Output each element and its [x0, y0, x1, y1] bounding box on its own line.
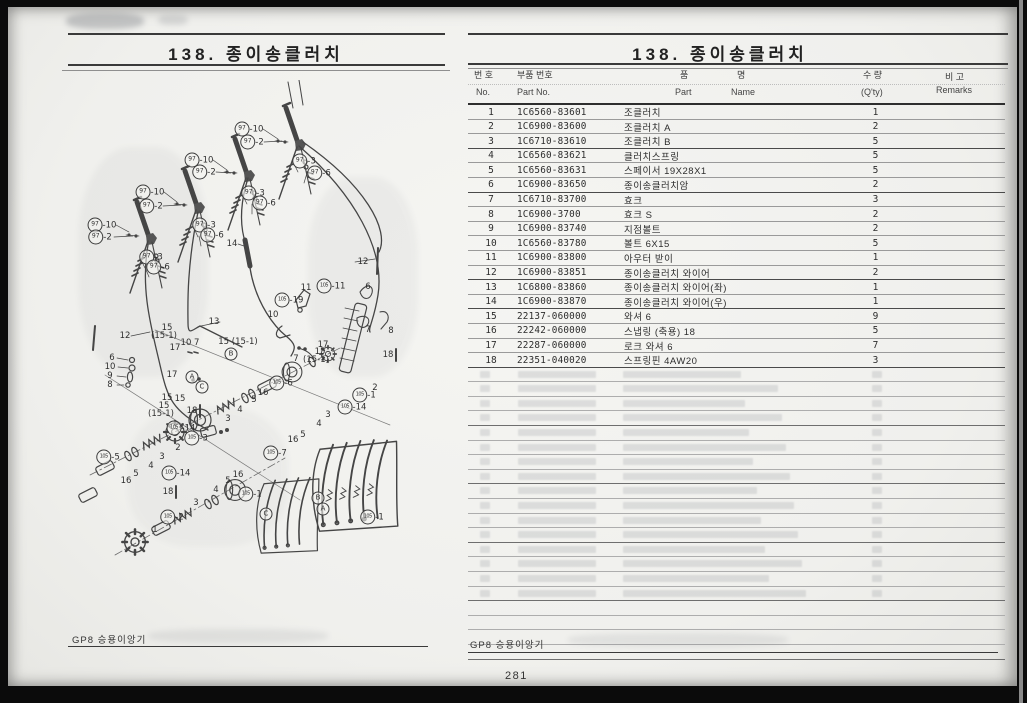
cell-no: 8: [468, 209, 514, 220]
scanned-page-spread: 138. 종이송클러치: [8, 7, 1017, 686]
bleedthrough-footer: [568, 633, 788, 647]
empty-table-row: [468, 616, 1005, 631]
diagram-callout: 3: [193, 498, 198, 508]
left-page-footer: GP8 승용이앙기: [72, 632, 146, 646]
col-header-part-ko: 부품 번호: [517, 68, 553, 81]
diagram-callout: 7: [293, 354, 298, 364]
cell-qty: 5: [847, 238, 904, 249]
empty-table-row: [468, 514, 1005, 529]
cell-part-name: 로크 와셔 6: [617, 339, 847, 353]
cell-qty: 2: [847, 121, 904, 132]
cell-qty: 9: [847, 311, 904, 322]
diagram-figure-ref: 97-6: [200, 228, 223, 243]
cell-part-name: 조클러치 B: [617, 134, 847, 148]
table-row: 11C6560-83601조클러치1: [468, 105, 1005, 120]
diagram-callout: 4: [237, 405, 242, 415]
cell-part-number: 1C6560-83780: [514, 238, 617, 249]
diagram-figure-ref: 97-6: [146, 260, 169, 275]
table-row: 91C6900-83740지점볼트2: [468, 222, 1005, 237]
diagram-callout: (15-1): [151, 331, 177, 341]
diagram-figure-ref: 97-2: [240, 135, 263, 150]
diagram-callout: 8: [107, 380, 112, 390]
table-row: 121C6900-83851종이송클러치 와이어2: [468, 266, 1005, 281]
empty-table-row: [468, 368, 1005, 383]
diagram-callout: 16: [233, 470, 244, 480]
cell-no: 17: [468, 340, 514, 351]
cell-qty: 2: [847, 223, 904, 234]
col-header-no-en: No.: [476, 87, 490, 97]
diagram-group-letter: A: [317, 503, 330, 516]
left-title-rule-top: [68, 33, 445, 35]
cell-qty: 5: [847, 150, 904, 161]
left-title-rule-bottom: [68, 64, 445, 66]
col-header-remarks-en: Remarks: [936, 85, 972, 95]
diagram-callout: 16: [121, 476, 132, 486]
cell-part-name: 스프링핀 4AW20: [617, 353, 847, 367]
diagram-callout: 2: [372, 383, 377, 393]
diagram-callout: 12: [358, 257, 369, 267]
cell-part-number: 1C6900-83650: [514, 179, 617, 190]
diagram-group-letter: C: [260, 508, 273, 521]
diagram-figure-ref: 105-7: [263, 446, 286, 461]
diagram-callout: 5: [225, 476, 230, 486]
cell-part-name: 종이송클러치암: [617, 178, 847, 192]
empty-table-row: [468, 528, 1005, 543]
cell-part-number: 1C6900-83740: [514, 223, 617, 234]
diagram-figure-ref: 105-6: [269, 376, 292, 391]
col-header-name-ko-2: 명: [737, 68, 745, 81]
diagram-figure-ref: 105-5: [96, 450, 119, 465]
table-row: 141C6900-83870종이송클러치 와이어(우)1: [468, 295, 1005, 310]
cell-part-name: 와셔 6: [617, 309, 847, 323]
diagram-figure-ref: 97-2: [192, 165, 215, 180]
empty-table-row: [468, 572, 1005, 587]
cell-qty: 1: [847, 282, 904, 293]
diagram-callout: 15: [175, 394, 186, 404]
cell-part-number: 1C6900-83800: [514, 252, 617, 263]
empty-table-row: [468, 441, 1005, 456]
empty-table-row: [468, 426, 1005, 441]
table-row: 1622242-060000스냅링 (축용) 185: [468, 324, 1005, 339]
diagram-callout: 17: [167, 370, 178, 380]
cell-part-name: 스페이서 19X28X1: [617, 163, 847, 177]
left-page-title: 138. 종이송클러치: [168, 40, 344, 65]
diagram-callout: 3: [225, 414, 230, 424]
cell-no: 4: [468, 150, 514, 161]
col-header-name-en-1: Part: [675, 87, 692, 97]
empty-table-row: [468, 601, 1005, 616]
header-divider: [468, 84, 1005, 85]
cell-qty: 1: [847, 107, 904, 118]
diagram-callout: 16: [288, 435, 299, 445]
cell-part-number: 22287-060000: [514, 340, 617, 351]
col-header-name-en-2: Name: [731, 87, 755, 97]
table-row: 101C6560-83780볼트 6X155: [468, 236, 1005, 251]
cell-part-name: 종이송클러치 와이어: [617, 266, 847, 280]
scanner-edge-strip: [1019, 0, 1023, 703]
cell-part-name: 지점볼트: [617, 222, 847, 236]
cell-part-number: 1C6560-83621: [514, 150, 617, 161]
bleedthrough-mark: [158, 15, 188, 25]
diagram-callout: 8: [388, 326, 393, 336]
col-header-remarks-ko: 비 고: [945, 70, 964, 83]
cell-part-name: 스냅링 (축용) 18: [617, 324, 847, 338]
cell-no: 10: [468, 238, 514, 249]
cell-no: 5: [468, 165, 514, 176]
col-header-qty-en: (Q'ty): [861, 87, 883, 97]
right-footer-rule: [468, 652, 998, 653]
table-row: 1822351-040020스프링핀 4AW203: [468, 353, 1005, 368]
diagram-group-letter: B: [225, 348, 238, 361]
cell-part-number: 1C6900-83851: [514, 267, 617, 278]
empty-table-row: [468, 484, 1005, 499]
diagram-callout: 3: [159, 452, 164, 462]
col-header-name-ko-1: 품: [680, 68, 688, 81]
diagram-callout: 18: [163, 487, 174, 497]
cell-part-number: 1C6900-83600: [514, 121, 617, 132]
table-row: 21C6900-83600조클러치 A2: [468, 120, 1005, 135]
right-page-footer: GP8 승용이앙기: [470, 637, 544, 651]
right-page-title: 138. 종이송클러치: [632, 40, 808, 65]
cell-qty: 2: [847, 209, 904, 220]
exploded-parts-diagram: 97-1097-297-397-697-1097-297-397-697-109…: [60, 80, 455, 640]
page-number: 281: [505, 670, 528, 682]
cell-qty: 1: [847, 296, 904, 307]
diagram-callout: 15 (15-1): [218, 337, 257, 347]
diagram-figure-ref: 105-2: [160, 510, 183, 525]
table-row: 71C6710-83700효크3: [468, 193, 1005, 208]
cell-no: 11: [468, 252, 514, 263]
cell-part-number: 22137-060000: [514, 311, 617, 322]
cell-part-number: 1C6710-83610: [514, 136, 617, 147]
diagram-callout: 18: [187, 406, 198, 416]
table-row: 1722287-060000로크 와셔 67: [468, 339, 1005, 354]
cell-part-number: 22351-040020: [514, 355, 617, 366]
empty-table-row: [468, 397, 1005, 412]
diagram-figure-ref: 97-6: [252, 196, 275, 211]
left-title-rule-bottom2: [62, 70, 450, 71]
diagram-figure-ref: 105-1: [360, 510, 383, 525]
empty-table-row: [468, 382, 1005, 397]
empty-table-row: [468, 557, 1005, 572]
diagram-callout: 11: [301, 283, 312, 293]
cell-no: 13: [468, 282, 514, 293]
cell-no: 3: [468, 136, 514, 147]
diagram-callout: 5: [133, 469, 138, 479]
diagram-callout: 18: [383, 350, 394, 360]
empty-table-row: [468, 411, 1005, 426]
empty-table-row: [468, 470, 1005, 485]
diagram-callout: 7: [365, 325, 370, 335]
diagram-figure-ref: 105-14: [162, 466, 191, 481]
diagram-callout: 16: [258, 388, 269, 398]
table-row: 81C6900-3700효크 S2: [468, 207, 1005, 222]
right-title-rule-top: [468, 33, 1008, 35]
cell-part-name: 효크: [617, 193, 847, 207]
table-row: 61C6900-83650종이송클러치암2: [468, 178, 1005, 193]
diagram-group-letter: C: [196, 381, 209, 394]
diagram-callout: 5: [251, 395, 256, 405]
cell-part-number: 1C6900-83870: [514, 296, 617, 307]
cell-part-name: 효크 S: [617, 207, 847, 221]
diagram-figure-ref: 105-11: [317, 279, 346, 294]
diagram-callout: 6: [365, 282, 370, 292]
diagram-figure-ref: 97-10: [136, 185, 165, 200]
cell-qty: 3: [847, 355, 904, 366]
diagram-figure-ref: 105-1: [238, 487, 261, 502]
cell-no: 16: [468, 325, 514, 336]
diagram-figure-ref: 105-3: [184, 431, 207, 446]
cell-qty: 3: [847, 194, 904, 205]
cell-no: 12: [468, 267, 514, 278]
cell-no: 6: [468, 179, 514, 190]
col-header-part-en: Part No.: [517, 87, 550, 97]
diagram-callout: 3: [325, 410, 330, 420]
bleedthrough-footer: [148, 629, 328, 643]
cell-no: 18: [468, 355, 514, 366]
cell-qty: 7: [847, 340, 904, 351]
diagram-callout: 12: [120, 331, 131, 341]
cell-part-number: 1C6900-3700: [514, 209, 617, 220]
cell-part-number: 1C6560-83601: [514, 107, 617, 118]
table-row: 131C6800-83860종이송클러치 와이어(좌)1: [468, 280, 1005, 295]
cell-no: 1: [468, 107, 514, 118]
diagram-callout: 10: [268, 310, 279, 320]
cell-part-number: 1C6800-83860: [514, 282, 617, 293]
diagram-callout: 10 7: [181, 338, 200, 348]
bleedthrough-stamp: [66, 13, 144, 29]
parts-table-header: 번 호 No. 부품 번호 Part No. 품 명 Part Name 수 량…: [468, 65, 1005, 105]
empty-table-row: [468, 499, 1005, 514]
diagram-callout: 4: [213, 485, 218, 495]
cell-part-name: 종이송클러치 와이어(좌): [617, 280, 847, 294]
left-footer-rule: [68, 646, 428, 647]
diagram-callout: 14: [227, 239, 238, 249]
cell-no: 15: [468, 311, 514, 322]
diagram-callout: 4: [148, 461, 153, 471]
cell-no: 7: [468, 194, 514, 205]
table-row: 31C6710-83610조클러치 B5: [468, 134, 1005, 149]
cell-qty: 1: [847, 252, 904, 263]
table-row: 1522137-060000와셔 69: [468, 309, 1005, 324]
cell-no: 14: [468, 296, 514, 307]
cell-qty: 2: [847, 267, 904, 278]
diagram-callout: 17: [170, 343, 181, 353]
cell-part-name: 종이송클러치 와이어(우): [617, 295, 847, 309]
diagram-callout: 5: [300, 430, 305, 440]
cell-qty: 5: [847, 136, 904, 147]
diagram-figure-ref: 97-2: [88, 230, 111, 245]
diagram-callout: (15-1): [303, 355, 329, 365]
cell-part-name: 조클러치: [617, 105, 847, 119]
cell-qty: 2: [847, 179, 904, 190]
diagram-callout: 1: [152, 525, 157, 535]
table-row: 51C6560-83631스페이서 19X28X15: [468, 163, 1005, 178]
cell-part-name: 아우터 받이: [617, 251, 847, 265]
diagram-figure-ref: 97-6: [307, 166, 330, 181]
cell-qty: 5: [847, 325, 904, 336]
diagram-figure-ref: 97-2: [139, 199, 162, 214]
diagram-figure-ref: 105-19: [275, 293, 304, 308]
cell-part-name: 조클러치 A: [617, 120, 847, 134]
cell-part-number: 1C6710-83700: [514, 194, 617, 205]
table-row: 111C6900-83800아우터 받이1: [468, 251, 1005, 266]
cell-qty: 5: [847, 165, 904, 176]
col-header-qty-ko: 수 량: [863, 68, 882, 81]
diagram-callout: 4: [316, 419, 321, 429]
cell-part-number: 1C6560-83631: [514, 165, 617, 176]
cell-no: 2: [468, 121, 514, 132]
diagram-callout: 2: [175, 443, 180, 453]
diagram-callout: 13: [209, 317, 220, 327]
empty-table-row: [468, 543, 1005, 558]
col-header-no-ko: 번 호: [474, 68, 493, 81]
diagram-callout: (15-1): [148, 409, 174, 419]
cell-part-name: 클러치스프링: [617, 149, 847, 163]
empty-table-row: [468, 587, 1005, 602]
cell-part-name: 볼트 6X15: [617, 236, 847, 250]
parts-table-empty-rows: [468, 368, 1005, 660]
parts-table: 번 호 No. 부품 번호 Part No. 품 명 Part Name 수 량…: [468, 65, 1005, 660]
cell-no: 9: [468, 223, 514, 234]
empty-table-row: [468, 455, 1005, 470]
table-row: 41C6560-83621클러치스프링5: [468, 149, 1005, 164]
cell-part-number: 22242-060000: [514, 325, 617, 336]
parts-table-body: 11C6560-83601조클러치121C6900-83600조클러치 A231…: [468, 105, 1005, 368]
